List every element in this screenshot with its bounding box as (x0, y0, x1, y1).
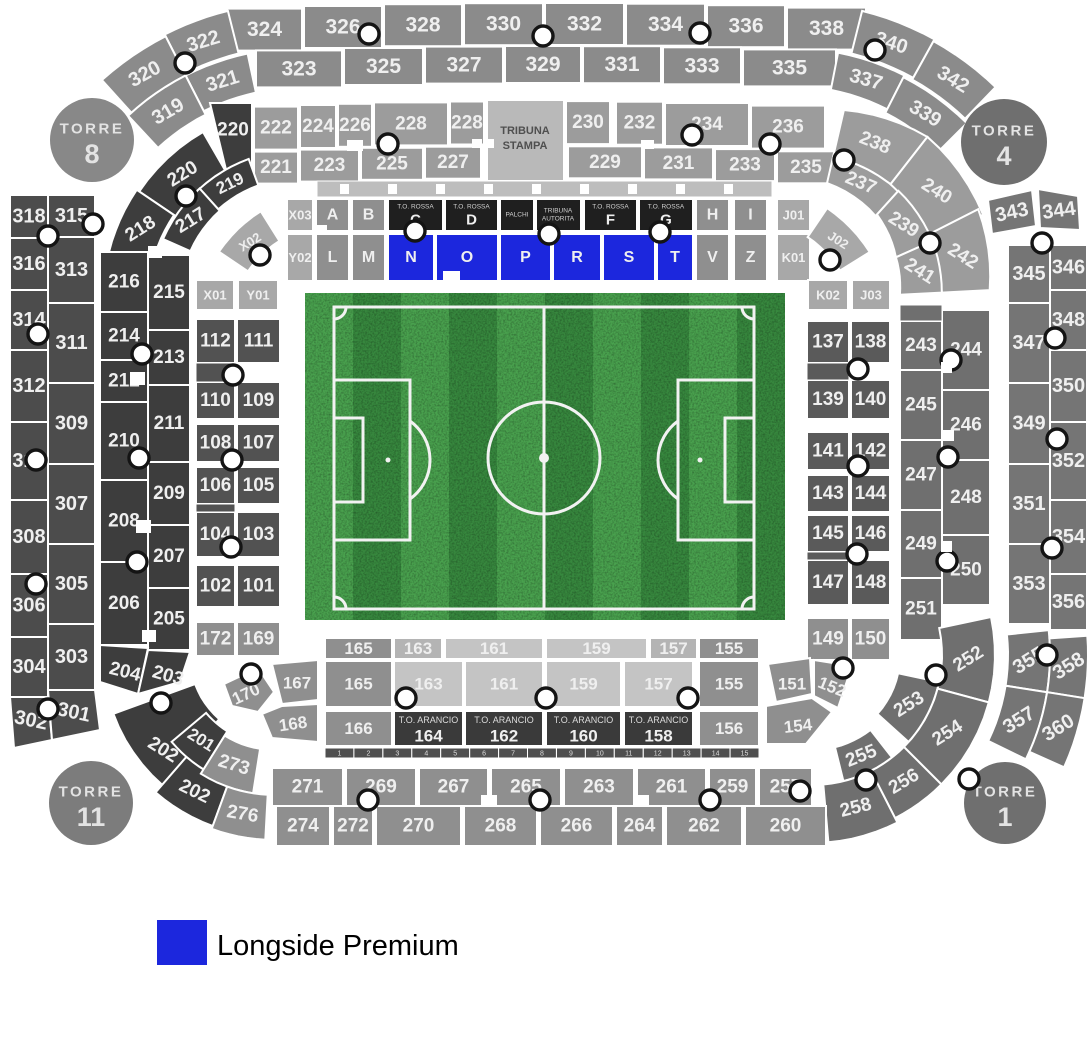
svg-text:TORRE: TORRE (60, 121, 125, 138)
svg-text:318: 318 (12, 206, 45, 228)
svg-text:L: L (328, 249, 338, 266)
svg-text:334: 334 (648, 13, 683, 36)
svg-text:230: 230 (572, 112, 604, 133)
svg-text:346: 346 (1052, 257, 1085, 279)
svg-text:148: 148 (855, 572, 887, 593)
svg-text:245: 245 (905, 395, 937, 416)
svg-text:156: 156 (715, 719, 743, 738)
svg-text:Z: Z (746, 249, 756, 266)
svg-text:213: 213 (153, 347, 185, 368)
svg-text:172: 172 (200, 629, 232, 650)
svg-text:259: 259 (717, 777, 749, 798)
svg-text:141: 141 (812, 441, 844, 462)
svg-text:T.O. ROSSA: T.O. ROSSA (453, 204, 490, 211)
svg-text:I: I (748, 207, 752, 224)
svg-text:Y01: Y01 (246, 288, 269, 303)
svg-text:V: V (707, 249, 718, 266)
svg-text:15: 15 (741, 751, 749, 758)
svg-text:107: 107 (243, 433, 275, 454)
svg-text:208: 208 (108, 511, 140, 532)
svg-text:220: 220 (217, 120, 249, 141)
svg-text:165: 165 (344, 639, 372, 658)
svg-text:X01: X01 (203, 288, 226, 303)
svg-text:233: 233 (729, 155, 761, 176)
svg-text:J03: J03 (860, 288, 882, 303)
svg-text:231: 231 (663, 153, 695, 174)
svg-text:271: 271 (292, 777, 324, 798)
svg-text:TRIBUNA: TRIBUNA (500, 125, 550, 137)
svg-text:328: 328 (405, 14, 440, 37)
svg-text:T.O. ARANCIO: T.O. ARANCIO (629, 715, 689, 725)
svg-text:105: 105 (243, 475, 275, 496)
svg-text:209: 209 (153, 483, 185, 504)
svg-text:P: P (520, 249, 531, 266)
svg-text:169: 169 (243, 629, 275, 650)
svg-text:3: 3 (395, 751, 399, 758)
svg-text:1: 1 (997, 802, 1012, 832)
svg-text:211: 211 (154, 413, 185, 434)
svg-text:11: 11 (77, 802, 106, 832)
svg-text:225: 225 (376, 153, 408, 174)
svg-text:R: R (571, 249, 583, 266)
svg-text:303: 303 (55, 646, 88, 668)
svg-text:10: 10 (596, 751, 604, 758)
svg-text:270: 270 (403, 816, 435, 837)
svg-text:7: 7 (511, 751, 515, 758)
svg-text:327: 327 (446, 54, 481, 77)
svg-text:226: 226 (339, 115, 371, 136)
svg-text:347: 347 (1012, 332, 1045, 354)
svg-text:14: 14 (712, 751, 720, 758)
svg-text:335: 335 (772, 56, 807, 79)
svg-text:Y02: Y02 (288, 250, 311, 265)
svg-text:164: 164 (414, 727, 443, 746)
svg-text:163: 163 (414, 675, 442, 694)
svg-text:267: 267 (438, 777, 470, 798)
svg-text:8: 8 (84, 139, 99, 169)
svg-text:216: 216 (108, 272, 140, 293)
svg-text:A: A (327, 207, 339, 224)
svg-text:13: 13 (683, 751, 691, 758)
svg-text:137: 137 (812, 332, 844, 353)
svg-text:N: N (405, 249, 417, 266)
svg-text:12: 12 (654, 751, 662, 758)
svg-text:268: 268 (485, 816, 517, 837)
svg-text:TRIBUNA: TRIBUNA (544, 208, 573, 215)
svg-text:139: 139 (812, 389, 844, 410)
svg-text:157: 157 (644, 675, 672, 694)
svg-text:155: 155 (715, 639, 743, 658)
svg-text:140: 140 (855, 389, 887, 410)
svg-text:161: 161 (480, 639, 508, 658)
svg-text:8: 8 (540, 751, 544, 758)
svg-text:158: 158 (644, 727, 672, 746)
svg-text:9: 9 (569, 751, 573, 758)
svg-text:D: D (466, 212, 477, 229)
svg-text:T.O. ARANCIO: T.O. ARANCIO (399, 715, 459, 725)
svg-text:332: 332 (567, 13, 602, 36)
svg-text:X03: X03 (288, 208, 311, 223)
svg-text:159: 159 (582, 639, 610, 658)
svg-text:165: 165 (344, 675, 372, 694)
svg-text:H: H (707, 207, 719, 224)
svg-text:149: 149 (812, 629, 844, 650)
svg-text:4: 4 (996, 141, 1011, 171)
svg-text:336: 336 (728, 15, 763, 38)
svg-text:T.O. ROSSA: T.O. ROSSA (397, 204, 434, 211)
svg-text:Longside Premium: Longside Premium (217, 930, 459, 962)
svg-text:229: 229 (589, 152, 621, 173)
svg-text:260: 260 (770, 816, 802, 837)
svg-text:228: 228 (395, 113, 427, 134)
svg-text:147: 147 (812, 572, 844, 593)
svg-text:266: 266 (561, 816, 593, 837)
svg-text:157: 157 (659, 639, 687, 658)
svg-text:146: 146 (855, 523, 887, 544)
svg-text:145: 145 (812, 523, 844, 544)
svg-text:166: 166 (344, 719, 372, 738)
svg-text:PALCHI: PALCHI (506, 212, 529, 219)
svg-text:215: 215 (153, 282, 185, 303)
svg-text:311: 311 (55, 332, 87, 354)
svg-text:325: 325 (366, 55, 401, 78)
svg-text:333: 333 (684, 54, 719, 77)
svg-text:143: 143 (812, 483, 844, 504)
svg-text:356: 356 (1052, 591, 1085, 613)
svg-text:T: T (670, 249, 680, 266)
svg-text:312: 312 (12, 375, 45, 397)
svg-text:264: 264 (624, 816, 656, 837)
svg-text:2: 2 (366, 751, 370, 758)
svg-text:330: 330 (486, 13, 521, 36)
svg-text:228: 228 (451, 113, 483, 134)
svg-text:4: 4 (424, 751, 428, 758)
svg-text:272: 272 (337, 816, 369, 837)
svg-text:235: 235 (790, 157, 822, 178)
svg-text:T.O. ARANCIO: T.O. ARANCIO (554, 715, 614, 725)
svg-text:351: 351 (1012, 493, 1045, 515)
svg-text:AUTORITA: AUTORITA (542, 216, 575, 223)
svg-text:TORRE: TORRE (59, 784, 124, 801)
svg-text:263: 263 (583, 777, 615, 798)
svg-text:103: 103 (243, 524, 275, 545)
svg-text:112: 112 (200, 331, 231, 352)
svg-text:349: 349 (1012, 413, 1045, 435)
svg-text:316: 316 (12, 253, 45, 275)
svg-text:323: 323 (281, 57, 316, 80)
svg-text:TORRE: TORRE (972, 123, 1037, 140)
svg-text:163: 163 (404, 639, 432, 658)
svg-text:5: 5 (453, 751, 457, 758)
svg-text:326: 326 (325, 16, 360, 39)
svg-text:138: 138 (855, 332, 887, 353)
svg-text:150: 150 (855, 629, 887, 650)
svg-text:223: 223 (314, 155, 346, 176)
svg-text:232: 232 (624, 113, 656, 134)
svg-text:214: 214 (108, 326, 140, 347)
svg-text:306: 306 (12, 595, 45, 617)
svg-text:247: 247 (905, 465, 937, 486)
svg-text:224: 224 (302, 116, 334, 137)
svg-text:329: 329 (525, 53, 560, 76)
svg-text:111: 111 (244, 331, 274, 352)
svg-text:F: F (606, 212, 615, 229)
svg-text:352: 352 (1052, 450, 1085, 472)
svg-text:324: 324 (247, 18, 282, 41)
svg-text:345: 345 (1012, 263, 1045, 285)
svg-text:S: S (624, 249, 635, 266)
svg-text:350: 350 (1052, 375, 1085, 397)
svg-text:110: 110 (200, 390, 231, 411)
svg-text:O: O (461, 249, 473, 266)
svg-text:T.O. ARANCIO: T.O. ARANCIO (474, 715, 534, 725)
svg-text:168: 168 (278, 713, 309, 736)
svg-text:206: 206 (108, 593, 140, 614)
svg-text:207: 207 (153, 546, 185, 567)
svg-text:TORRE: TORRE (973, 784, 1038, 801)
svg-text:T.O. ROSSA: T.O. ROSSA (648, 204, 685, 211)
svg-text:K02: K02 (816, 288, 840, 303)
svg-text:262: 262 (688, 816, 720, 837)
svg-text:249: 249 (905, 534, 937, 555)
svg-text:STAMPA: STAMPA (503, 140, 548, 152)
svg-text:246: 246 (950, 415, 982, 436)
svg-text:308: 308 (12, 526, 45, 548)
svg-text:331: 331 (604, 53, 639, 76)
svg-text:243: 243 (905, 335, 937, 356)
svg-text:251: 251 (905, 599, 937, 620)
svg-text:307: 307 (55, 493, 88, 515)
svg-text:261: 261 (656, 777, 688, 798)
svg-text:222: 222 (260, 118, 292, 139)
svg-text:106: 106 (200, 475, 232, 496)
svg-text:313: 313 (55, 259, 88, 281)
svg-text:160: 160 (569, 727, 597, 746)
svg-text:161: 161 (490, 675, 518, 694)
svg-text:154: 154 (783, 715, 814, 737)
svg-text:304: 304 (12, 656, 46, 678)
svg-text:102: 102 (200, 576, 232, 597)
svg-text:309: 309 (55, 413, 88, 435)
svg-text:353: 353 (1012, 573, 1045, 595)
svg-text:109: 109 (243, 390, 275, 411)
svg-text:274: 274 (287, 816, 319, 837)
svg-text:205: 205 (153, 609, 185, 630)
svg-text:221: 221 (260, 157, 292, 178)
svg-text:248: 248 (950, 487, 982, 508)
svg-text:338: 338 (809, 17, 844, 40)
svg-text:K01: K01 (782, 250, 806, 265)
svg-text:11: 11 (625, 751, 632, 758)
svg-text:J01: J01 (783, 208, 805, 223)
svg-text:159: 159 (569, 675, 597, 694)
svg-text:227: 227 (437, 152, 469, 173)
svg-text:162: 162 (490, 727, 518, 746)
svg-text:M: M (362, 249, 375, 266)
svg-text:236: 236 (772, 117, 804, 138)
svg-text:151: 151 (778, 675, 806, 694)
svg-text:167: 167 (283, 674, 311, 693)
svg-text:T.O. ROSSA: T.O. ROSSA (592, 204, 629, 211)
svg-text:144: 144 (855, 483, 887, 504)
svg-text:344: 344 (1041, 197, 1078, 224)
svg-text:101: 101 (243, 576, 275, 597)
svg-text:6: 6 (482, 751, 486, 758)
svg-text:155: 155 (715, 675, 743, 694)
svg-text:305: 305 (55, 573, 88, 595)
svg-text:B: B (363, 207, 375, 224)
svg-text:1: 1 (338, 751, 342, 758)
